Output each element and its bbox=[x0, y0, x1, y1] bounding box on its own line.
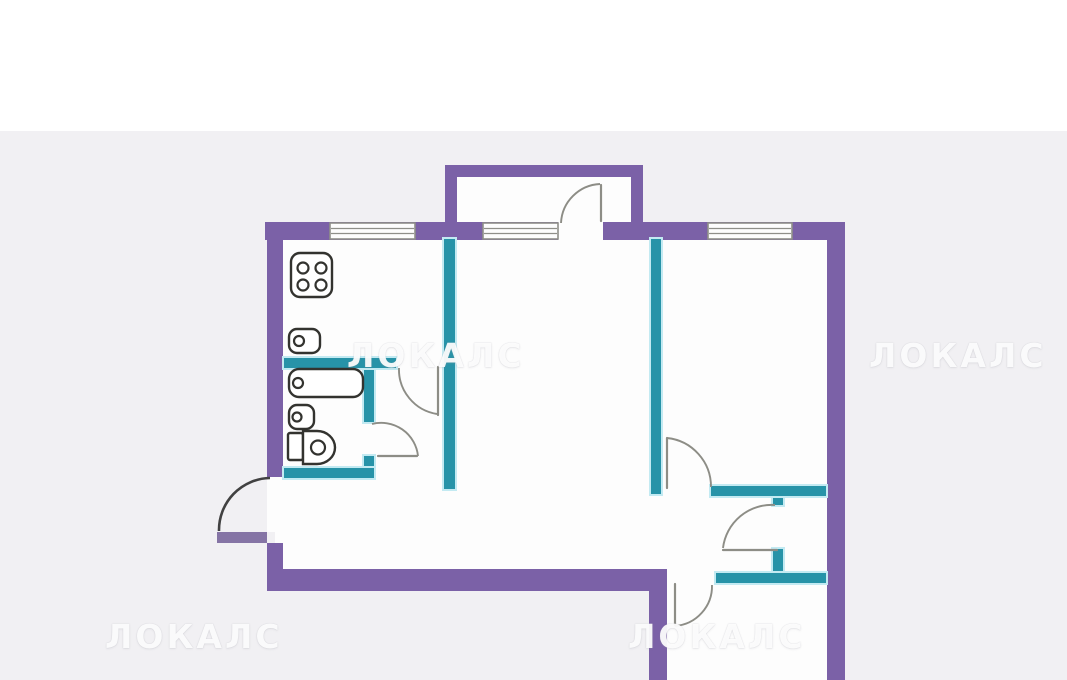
kitchen-window-icon bbox=[330, 223, 415, 239]
bathroom-right-wall bbox=[363, 369, 375, 423]
toilet-icon bbox=[288, 431, 335, 464]
balcony-door-opening bbox=[558, 221, 603, 240]
closet-bottom-wall bbox=[715, 572, 827, 584]
right-wall bbox=[827, 222, 845, 680]
entrance-door-leaf bbox=[217, 532, 267, 543]
washbasin-icon bbox=[289, 405, 314, 429]
balcony-top-wall bbox=[445, 165, 643, 177]
closet-jamb-lower bbox=[772, 548, 784, 572]
floor-plan-canvas: ЛОКАЛС ЛОКАЛС ЛОКАЛС ЛОКАЛС bbox=[0, 0, 1067, 680]
watermark-text: ЛОКАЛС bbox=[105, 617, 283, 656]
watermark-text: ЛОКАЛС bbox=[869, 336, 1047, 375]
bedroom-window-icon bbox=[708, 223, 792, 239]
entrance-opening bbox=[267, 477, 283, 532]
living-room-window-icon bbox=[483, 223, 558, 239]
apartment-floor bbox=[275, 230, 836, 583]
room-divider-wall bbox=[650, 238, 662, 495]
floor-areas bbox=[275, 170, 836, 680]
balcony-right-wall bbox=[631, 165, 643, 222]
bottom-wall bbox=[267, 569, 667, 591]
bedroom-bottom-wall bbox=[710, 485, 827, 497]
watermark-text: ЛОКАЛС bbox=[628, 617, 806, 656]
stove-icon bbox=[291, 253, 332, 297]
left-wall-upper bbox=[267, 222, 283, 477]
entrance-door-swing-icon bbox=[219, 478, 270, 531]
watermark-text: ЛОКАЛС bbox=[347, 336, 525, 375]
balcony-left-wall bbox=[445, 165, 457, 222]
bathroom-bottom-wall bbox=[283, 467, 375, 479]
kitchen-sink-icon bbox=[289, 329, 320, 353]
